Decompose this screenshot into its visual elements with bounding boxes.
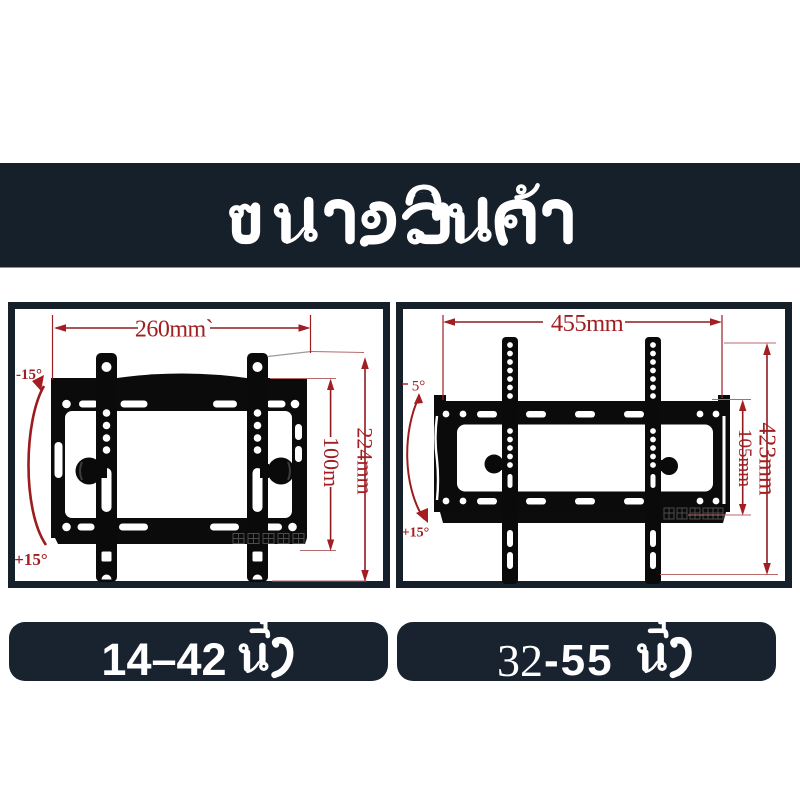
svg-text:423mm: 423mm <box>754 422 780 496</box>
svg-text:455mm: 455mm <box>551 310 624 337</box>
svg-text:-55: -55 <box>544 636 614 685</box>
svg-text:+15°: +15° <box>14 550 48 569</box>
svg-text:260mm`: 260mm` <box>135 317 213 343</box>
svg-text:+15°: +15° <box>402 526 430 541</box>
svg-text:105mm: 105mm <box>734 429 755 487</box>
svg-text:224mm: 224mm <box>353 427 378 494</box>
svg-text:32: 32 <box>497 635 543 686</box>
svg-text:100m: 100m <box>319 437 344 487</box>
svg-text:-15°: -15° <box>16 367 42 383</box>
svg-text:5°: 5° <box>412 379 426 395</box>
svg-text:14–42: 14–42 <box>101 634 226 685</box>
